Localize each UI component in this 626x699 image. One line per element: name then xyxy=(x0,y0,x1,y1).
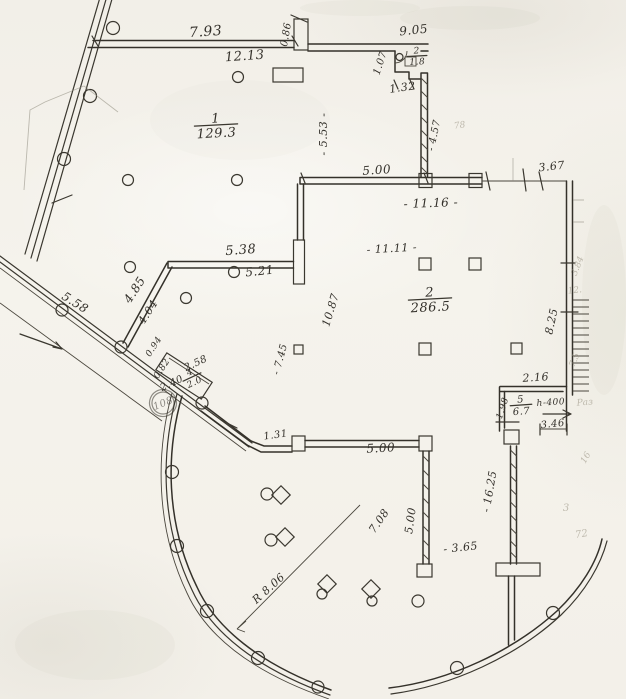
dimension-label: 5.00 xyxy=(362,162,392,178)
column-circle xyxy=(125,262,136,273)
column-square xyxy=(292,436,305,451)
dimension-label: 5.21 xyxy=(245,263,275,280)
dimension-label: - 11.16 - xyxy=(403,195,458,211)
dimension-label: 1.98 xyxy=(495,396,511,420)
column-circle xyxy=(451,662,464,675)
room1-right-wall xyxy=(294,184,305,284)
stair-wall xyxy=(421,73,428,177)
room-wc-label: 21.8 xyxy=(407,46,428,68)
dimension-label: - 5.53 - xyxy=(317,113,330,156)
column-circle xyxy=(261,488,273,500)
dimension-label: 0.94 xyxy=(144,335,164,359)
fixture-circle xyxy=(396,54,403,61)
column-square xyxy=(419,343,431,355)
room-area: 286.5 xyxy=(409,299,450,316)
dimension-label: 2.16 xyxy=(521,370,549,385)
column-circle xyxy=(412,595,424,607)
column-square xyxy=(419,436,432,451)
dimension-label: - 7.45 xyxy=(271,343,290,377)
wall-pier xyxy=(294,19,308,50)
dimension-label: - 16.25 xyxy=(479,469,499,513)
pencil-mark: 12. xyxy=(567,285,582,296)
south-wall xyxy=(247,436,432,577)
pencil-mark: 16 xyxy=(579,450,594,465)
dimension-label: 4.85 xyxy=(120,274,148,307)
column-square xyxy=(294,345,303,354)
dimension-label: 0.86 xyxy=(279,22,294,48)
room-area: 6.7 xyxy=(512,406,530,418)
column-square xyxy=(272,486,290,504)
dimension-label: 12.13 xyxy=(224,48,265,66)
room-number: 5 xyxy=(517,394,525,405)
dimension-label: - 4.57 xyxy=(426,119,443,153)
pencil-mark: 78 xyxy=(453,120,466,132)
column-circle xyxy=(317,589,327,599)
wall-pier xyxy=(294,240,305,284)
column-square xyxy=(469,258,481,270)
room-number: 1 xyxy=(211,111,221,126)
wall-pier xyxy=(417,564,432,577)
pencil-mark: Раз xyxy=(575,397,593,408)
dimension-label: - 11.11 - xyxy=(366,241,417,257)
column-square xyxy=(318,575,336,593)
pencil-mark: 3 xyxy=(563,503,569,514)
wall-pier xyxy=(496,563,540,576)
dimension-label: 9.05 xyxy=(399,22,429,39)
room-2-label: 2286.5 xyxy=(408,284,453,316)
dimension-label: 0.82 xyxy=(152,357,172,381)
height-note: h-400 xyxy=(536,397,565,409)
column-square xyxy=(419,258,431,270)
dimension-label: 5.38 xyxy=(225,242,257,259)
wall-pier xyxy=(504,430,519,444)
dimension-label: 4.04 xyxy=(135,297,161,327)
rotunda xyxy=(161,393,607,699)
column-circle xyxy=(166,466,179,479)
beam xyxy=(273,68,303,82)
dimension-label: 7.93 xyxy=(189,23,223,41)
dimension-label: 1.32 xyxy=(388,79,416,96)
column-square xyxy=(511,343,522,354)
street-arrow xyxy=(20,334,62,349)
column-circle xyxy=(107,22,120,35)
room-number: 2 xyxy=(424,285,435,300)
pencil-mark: 7.5 xyxy=(568,351,583,368)
dimension-label: 1.07 xyxy=(372,50,390,77)
column-circle xyxy=(265,534,277,546)
column-square xyxy=(362,580,380,598)
room-area: 129.3 xyxy=(196,125,236,142)
dimension-label: 5.00 xyxy=(402,506,419,534)
dimension-label: 3.67 xyxy=(538,159,566,175)
column-circle xyxy=(181,293,192,304)
street-wall xyxy=(0,0,252,451)
radius-label: R 8.06 xyxy=(249,570,288,607)
dimension-label: - 3.65 xyxy=(443,539,479,556)
dimension-label: 7.08 xyxy=(366,506,392,535)
column-circle xyxy=(547,607,560,620)
column-circle xyxy=(232,175,243,186)
column-square xyxy=(276,528,294,546)
mid-wall xyxy=(300,158,567,191)
pencil-mark: 72 xyxy=(574,528,588,541)
dimension-label: 8.25 xyxy=(542,307,560,336)
dimension-label: 10.87 xyxy=(319,292,341,328)
wall-pier xyxy=(469,174,482,188)
site-outline xyxy=(24,86,118,190)
radius-arrow xyxy=(237,505,360,632)
floorplan-scan: 7.9312.130.869.051.071.32- 5.53 -- 4.575… xyxy=(0,0,626,699)
dimension-label: 1.31 xyxy=(263,428,289,442)
room-number: 2 xyxy=(412,46,420,56)
scan-smudges xyxy=(15,0,626,680)
east-wing xyxy=(496,181,589,645)
room-5-label: 56.7 xyxy=(509,394,532,418)
room-area: 1.8 xyxy=(409,57,425,68)
column-circle xyxy=(84,90,97,103)
floorplan-drawing: 7.9312.130.869.051.071.32- 5.53 -- 4.575… xyxy=(0,0,626,699)
column-circle xyxy=(123,175,134,186)
room-area: 2.0 xyxy=(185,375,204,391)
dimension-label: 5.00 xyxy=(366,440,395,455)
